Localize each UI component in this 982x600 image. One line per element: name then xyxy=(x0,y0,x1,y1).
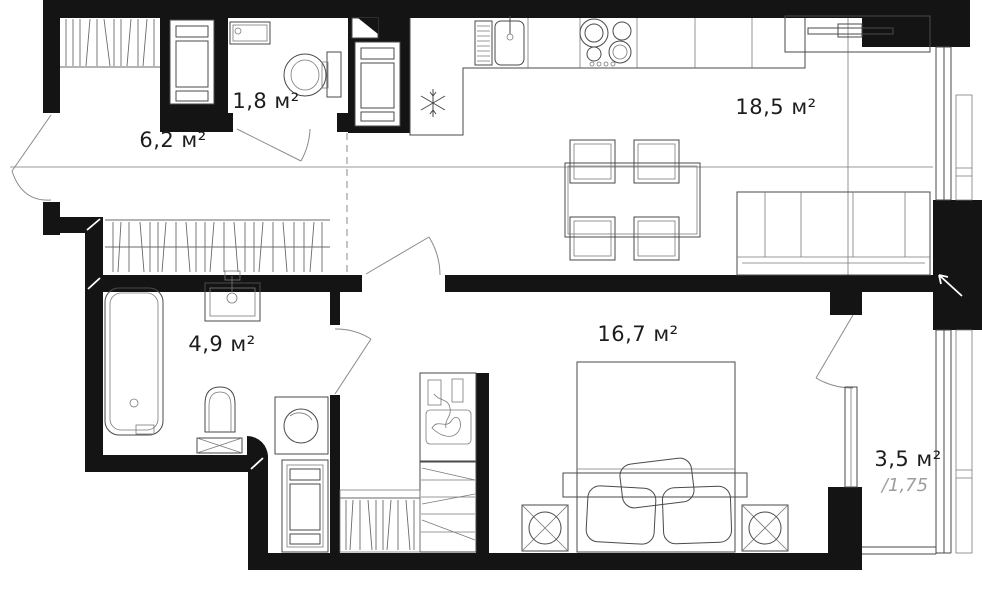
balcony-reduced-area-label: /1,75 xyxy=(880,475,928,496)
nightstand-left xyxy=(522,505,568,551)
pillow xyxy=(586,457,732,545)
floor-plan-canvas: 6,2 м² xyxy=(0,0,982,600)
wardrobe-hatching-icon xyxy=(60,19,160,67)
entrance-door xyxy=(12,115,51,200)
shelves-icon xyxy=(420,462,476,552)
bedroom-area-label: 16,7 м² xyxy=(597,322,678,346)
kitchen-living-area-label: 18,5 м² xyxy=(735,95,816,119)
bathroom-toilet-icon xyxy=(197,387,242,453)
bathtub-icon xyxy=(105,288,163,435)
wc-sink-icon xyxy=(230,22,270,44)
sofa xyxy=(737,192,930,275)
balcony-window-frame xyxy=(956,330,972,553)
wc-door xyxy=(237,129,310,161)
utility-cabinet xyxy=(282,460,328,552)
clothes-rail-icon xyxy=(105,220,330,272)
bathroom-area-label: 4,9 м² xyxy=(188,332,255,356)
washing-machine-icon xyxy=(275,397,328,454)
nightstand-right xyxy=(742,505,788,551)
cooktop-icon xyxy=(580,19,631,66)
bathroom-door xyxy=(335,329,371,394)
hallway-area-label: 6,2 м² xyxy=(139,128,206,152)
clothes-rail-icon xyxy=(340,490,420,552)
bedroom-door xyxy=(366,237,440,275)
kitchen-sink-icon xyxy=(475,16,524,65)
bed xyxy=(563,362,747,552)
dressing-area xyxy=(340,373,476,552)
floor-plan: 6,2 м² xyxy=(0,0,982,600)
balcony-glazing xyxy=(862,330,951,554)
wc-area-label: 1,8 м² xyxy=(232,89,299,113)
balcony-door xyxy=(816,315,857,487)
shaft-cabinet-left xyxy=(170,20,214,104)
dining-table xyxy=(565,140,700,260)
kitchen-living-room: 18,5 м² xyxy=(410,16,930,275)
living-room-window xyxy=(936,47,972,200)
balcony-area-label: 3,5 м² xyxy=(874,447,941,471)
fridge-snowflake-icon xyxy=(421,89,445,117)
